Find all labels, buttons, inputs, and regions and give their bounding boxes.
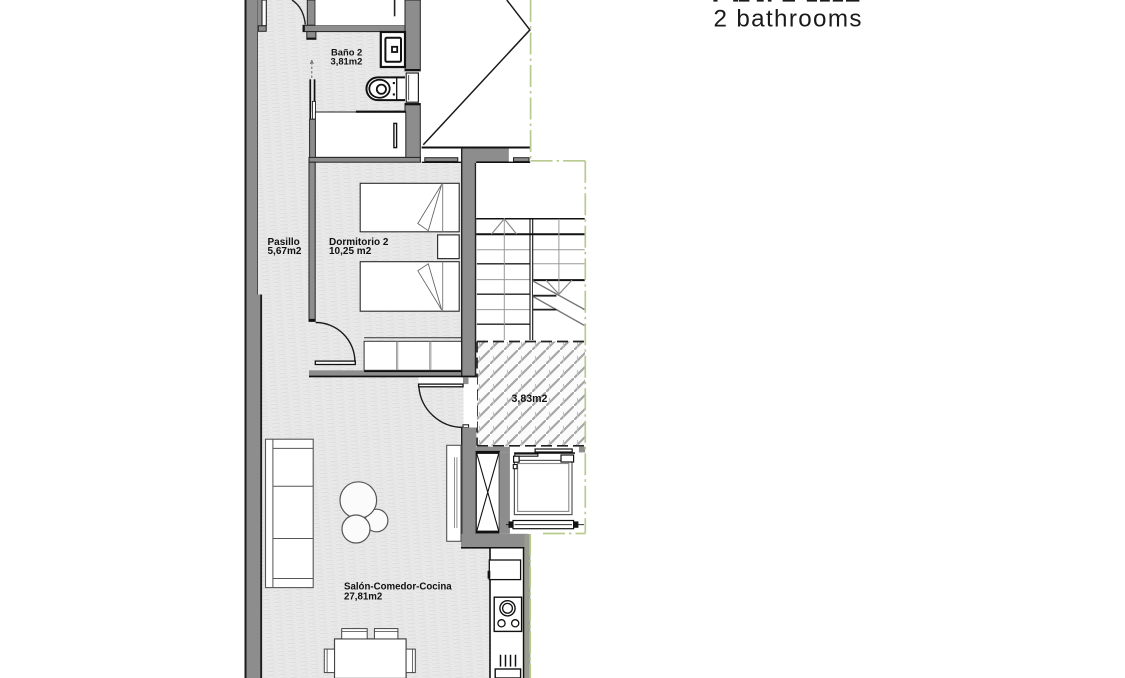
svg-text:3,83m2: 3,83m2 bbox=[512, 393, 548, 405]
svg-text:27,81m2: 27,81m2 bbox=[344, 592, 382, 603]
svg-text:5,67m2: 5,67m2 bbox=[268, 246, 302, 257]
svg-text:2 bathrooms: 2 bathrooms bbox=[714, 6, 863, 33]
svg-text:10,25 m2: 10,25 m2 bbox=[329, 246, 372, 257]
svg-text:3,81m2: 3,81m2 bbox=[331, 56, 363, 67]
